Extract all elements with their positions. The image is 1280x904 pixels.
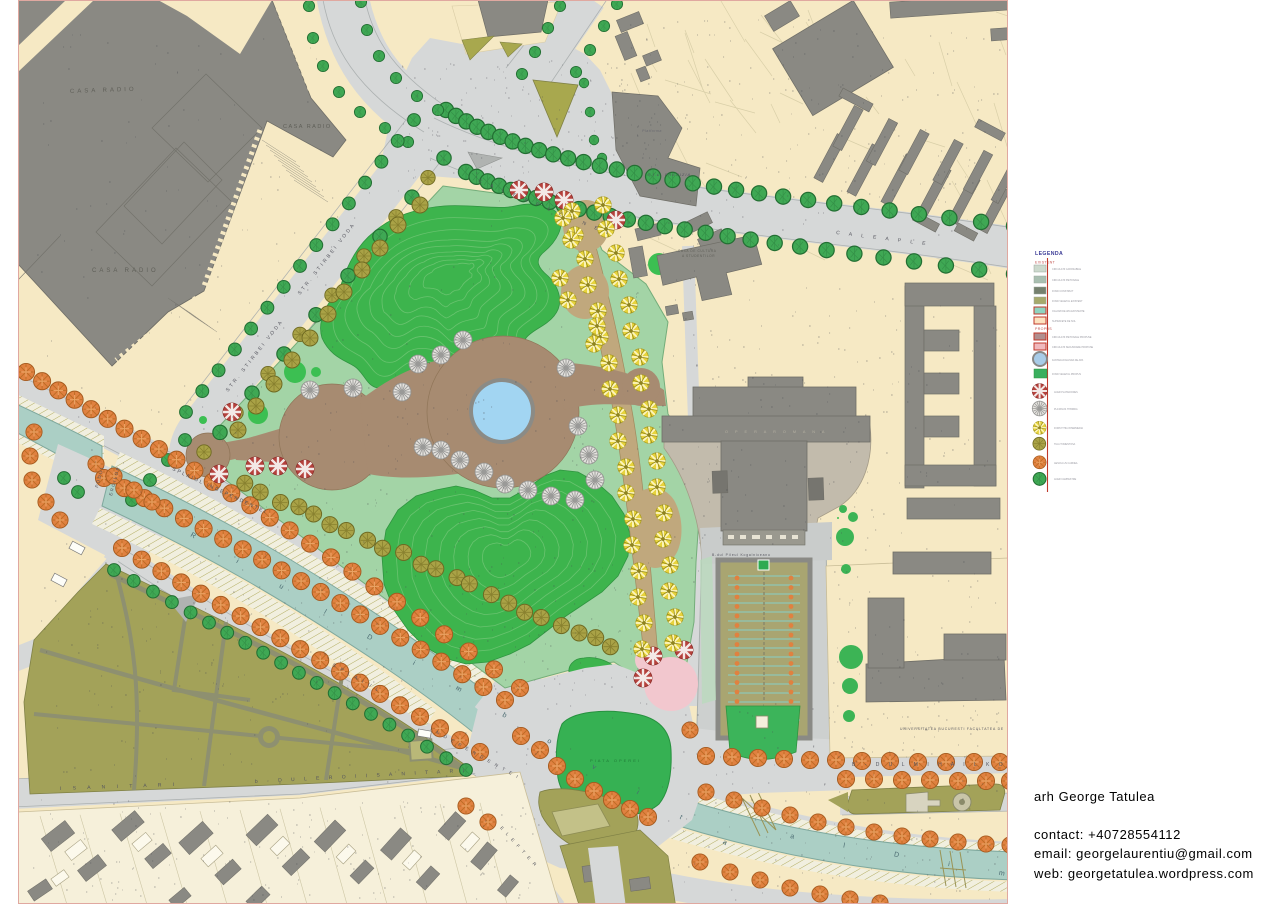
svg-text:email: georgelaurentiu@gmail.c: email: georgelaurentiu@gmail.com <box>1034 846 1253 861</box>
svg-text:PROPUS: PROPUS <box>1035 327 1052 331</box>
svg-text:PIATA OPEREI: PIATA OPEREI <box>590 758 641 763</box>
svg-text:CIRCULATII PIETONALE: CIRCULATII PIETONALE <box>1052 279 1080 282</box>
svg-text:PLATANUS HYBRIDA: PLATANUS HYBRIDA <box>1054 408 1078 411</box>
svg-text:UNIVERSITATEA BUCURESTI FACU: UNIVERSITATEA BUCURESTI FACULTATEA DE <box>900 727 1004 731</box>
svg-text:ACER CAMPESTRE: ACER CAMPESTRE <box>1054 478 1077 481</box>
svg-text:CIRCULATII PIETONALE PROPUSE: CIRCULATII PIETONALE PROPUSE <box>1052 336 1092 339</box>
svg-text:CASA DE CULTURA: CASA DE CULTURA <box>678 249 717 253</box>
svg-text:FOND VEGETAL PROPUS: FOND VEGETAL PROPUS <box>1052 373 1081 376</box>
svg-text:CASA RADIO: CASA RADIO <box>92 268 159 274</box>
svg-text:web: georgetatulea.wordpress.c: web: georgetatulea.wordpress.com <box>1033 866 1254 881</box>
svg-text:SUPRAFETE DE SOL: SUPRAFETE DE SOL <box>1052 320 1076 323</box>
svg-text:OGLINZI DE APA EXISTENTE: OGLINZI DE APA EXISTENTE <box>1052 310 1085 313</box>
svg-text:B-dul Pileul Kogalniceanu: B-dul Pileul Kogalniceanu <box>712 553 771 557</box>
svg-text:AESCULUS CARNEA: AESCULUS CARNEA <box>1054 462 1078 465</box>
svg-text:FORSYTHIA INTERMEDIA: FORSYTHIA INTERMEDIA <box>1054 427 1083 430</box>
svg-text:TILIA TOMENTOSA: TILIA TOMENTOSA <box>1054 443 1076 446</box>
svg-text:O P E R A R O M A N A: O P E R A R O M A N A <box>725 430 827 434</box>
svg-text:CIRCULATII CAROSABILE: CIRCULATII CAROSABILE <box>1052 268 1081 271</box>
svg-text:F.I.L. PRECIZIA: F.I.L. PRECIZIA <box>648 172 691 177</box>
svg-text:CIRCULATII SECUNDARE PROPUSE: CIRCULATII SECUNDARE PROPUSE <box>1052 346 1094 349</box>
svg-text:LEGENDA: LEGENDA <box>1035 251 1063 257</box>
svg-text:Platforma: Platforma <box>642 129 662 133</box>
svg-text:CASA RADIO: CASA RADIO <box>283 124 332 130</box>
svg-text:contact: +40728554112: contact: +40728554112 <box>1034 827 1181 842</box>
svg-text:arh George Tatulea: arh George Tatulea <box>1034 789 1155 804</box>
svg-text:FOND VEGETAL EXISTENT: FOND VEGETAL EXISTENT <box>1052 300 1083 303</box>
svg-text:FANTANA/OGLINDA DE APA: FANTANA/OGLINDA DE APA <box>1052 359 1084 362</box>
svg-text:A STUDENTILOR: A STUDENTILOR <box>682 254 715 258</box>
svg-text:ACER PLATANOIDES: ACER PLATANOIDES <box>1054 391 1078 394</box>
svg-text:FOND CONSTRUIT: FOND CONSTRUIT <box>1052 290 1074 293</box>
svg-text:B - D U L M I H A I L K O: B - D U L M I H A I L K O <box>852 762 1007 768</box>
svg-text:EXISTENT: EXISTENT <box>1035 261 1055 265</box>
